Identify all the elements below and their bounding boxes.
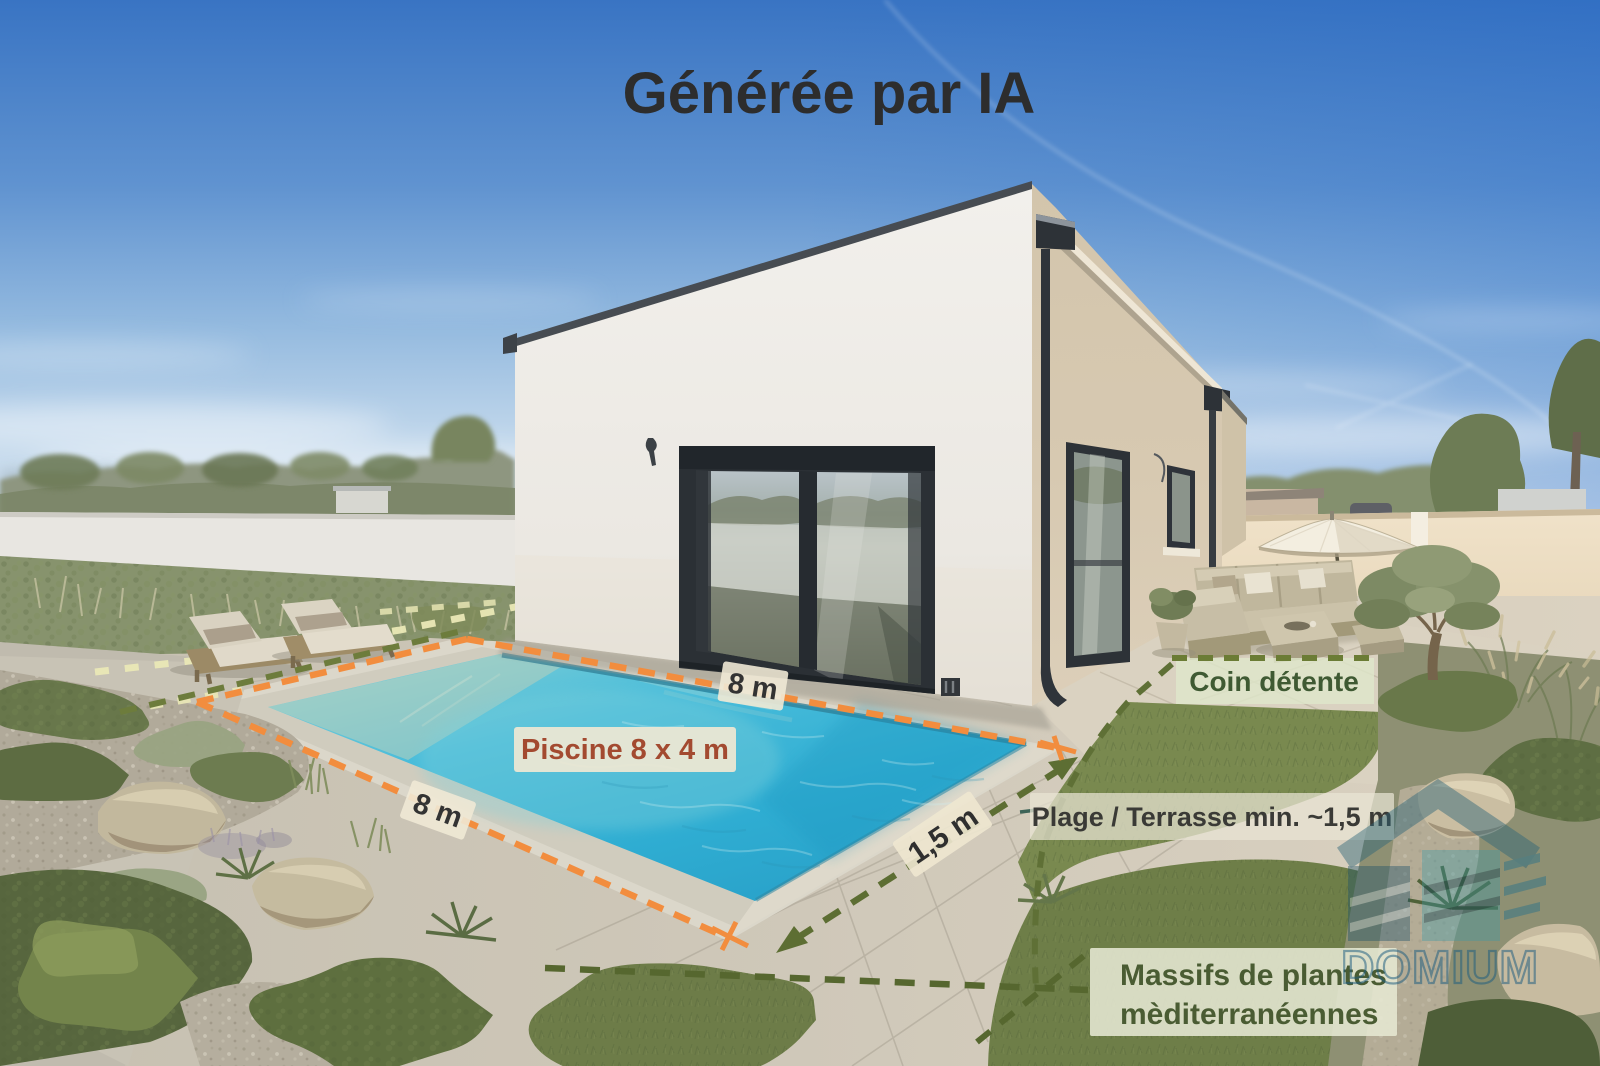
svg-text:DOMIUM: DOMIUM — [1341, 941, 1539, 993]
svg-text:Piscine 8 x 4 m: Piscine 8 x 4 m — [521, 734, 729, 766]
svg-text:Générée par IA: Générée par IA — [623, 61, 1036, 126]
svg-text:Coin détente: Coin détente — [1189, 666, 1359, 697]
svg-text:Plage / Terrasse min. ~1,5 m: Plage / Terrasse min. ~1,5 m — [1032, 802, 1392, 832]
svg-text:mèditerranéennes: mèditerranéennes — [1120, 998, 1378, 1031]
